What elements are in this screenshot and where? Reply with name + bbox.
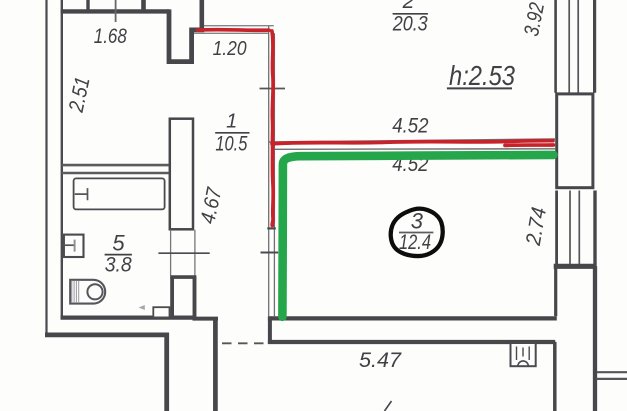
svg-text:5.47: 5.47: [359, 349, 402, 372]
svg-text:2: 2: [402, 0, 415, 13]
svg-text:h:2.53: h:2.53: [449, 60, 515, 91]
svg-text:1.68: 1.68: [94, 25, 127, 48]
svg-text:20.3: 20.3: [392, 13, 428, 36]
svg-text:5: 5: [112, 231, 125, 256]
svg-text:12.4: 12.4: [399, 231, 431, 254]
svg-text:3.8: 3.8: [105, 254, 132, 277]
svg-text:10.5: 10.5: [215, 132, 247, 155]
svg-text:4.52: 4.52: [392, 114, 429, 137]
svg-text:1: 1: [226, 110, 237, 132]
svg-text:1.20: 1.20: [213, 38, 247, 60]
